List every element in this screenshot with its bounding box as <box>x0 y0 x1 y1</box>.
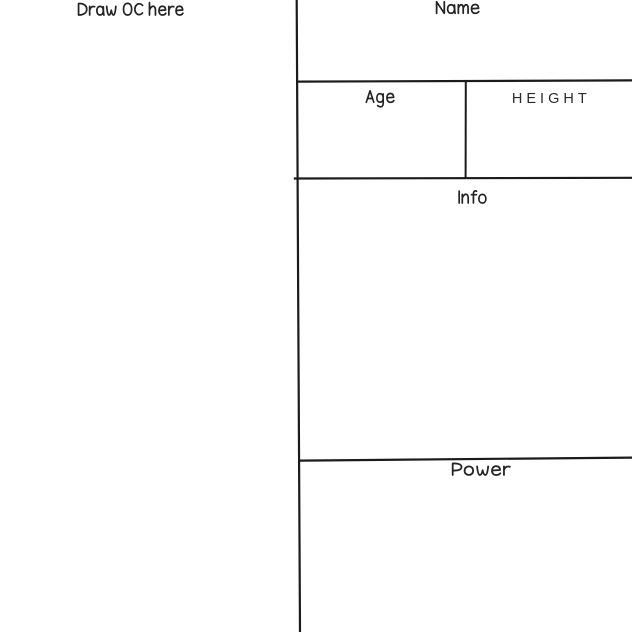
svg-text:HEIGHT: HEIGHT <box>512 91 591 107</box>
